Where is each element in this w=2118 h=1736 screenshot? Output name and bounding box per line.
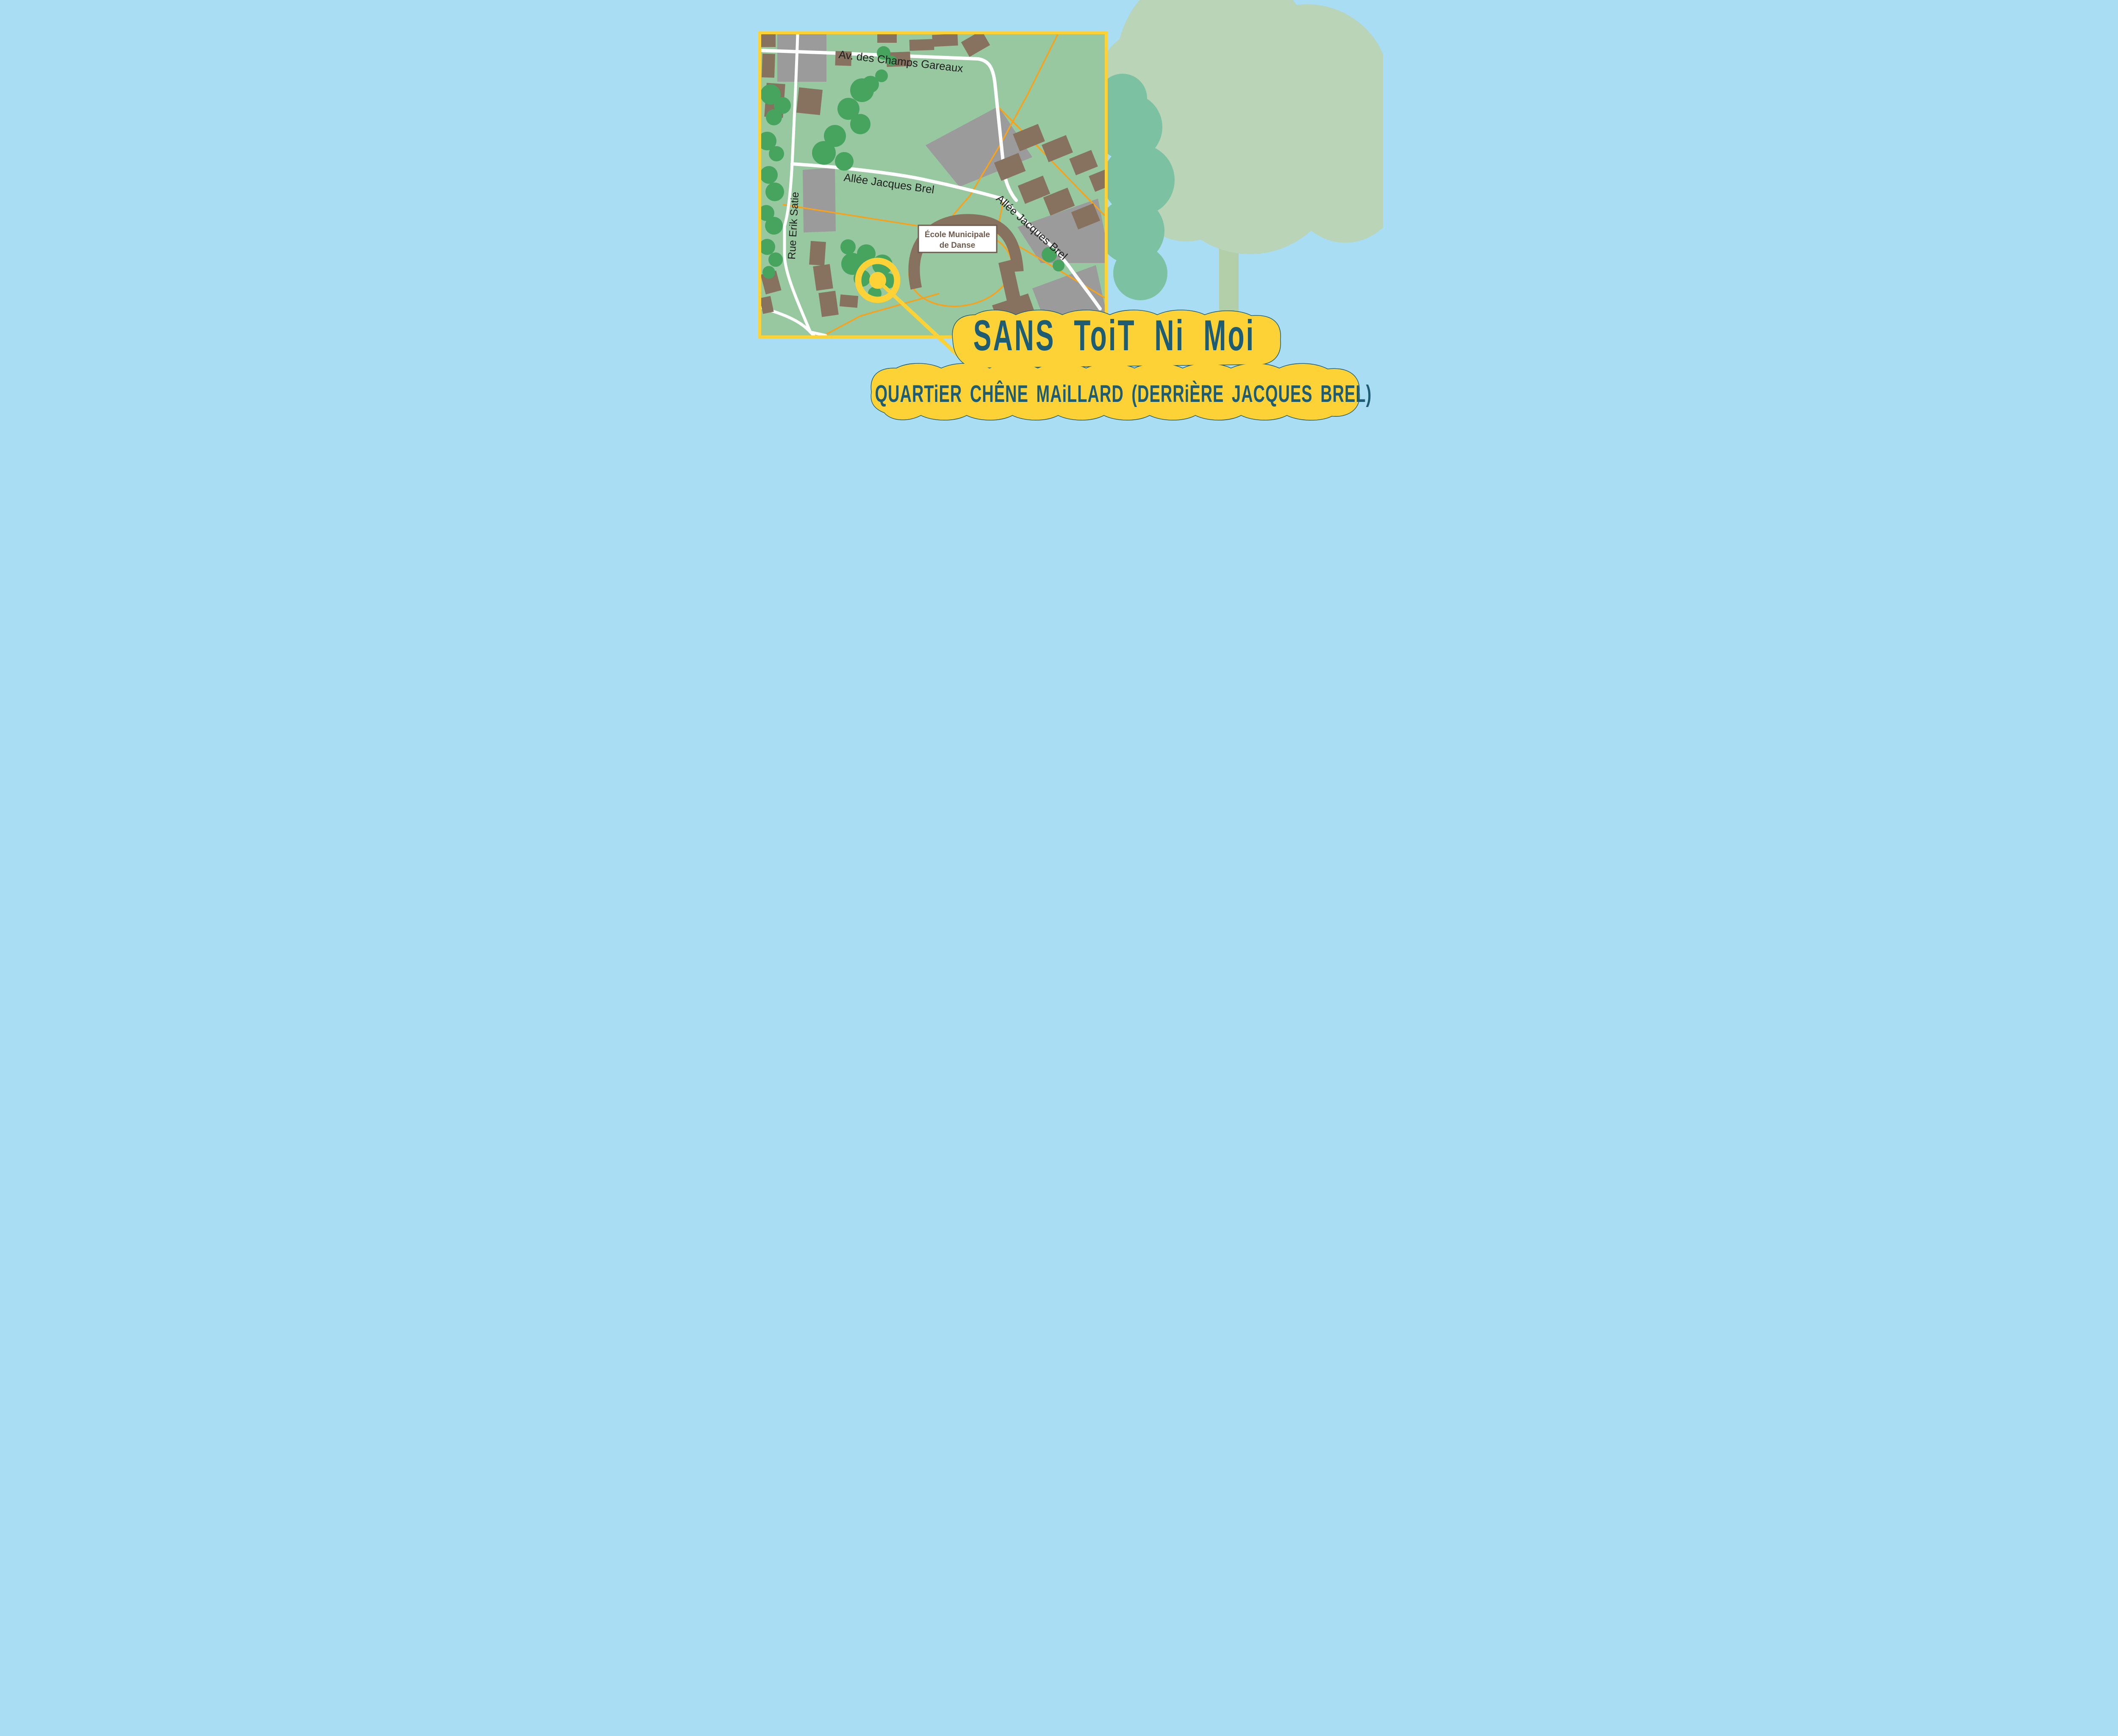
street-label-avenue: Av. des Champs Gareaux (838, 48, 964, 75)
map-art: École Municipale de Danse Av. des Champs… (761, 34, 1105, 335)
school-label-line2: de Danse (939, 241, 975, 250)
event-location-subtitle: QUARTiER CHÊNE MAiLLARD (DERRiÈRE JACQUE… (875, 382, 1358, 407)
flyer-scene: École Municipale de Danse Av. des Champs… (735, 0, 1383, 434)
school-label: École Municipale de Danse (918, 225, 997, 252)
event-title: SANS ToiT Ni Moi (947, 314, 1282, 357)
neighborhood-map: École Municipale de Danse Av. des Champs… (758, 31, 1108, 338)
school-label-line1: École Municipale (924, 230, 990, 239)
